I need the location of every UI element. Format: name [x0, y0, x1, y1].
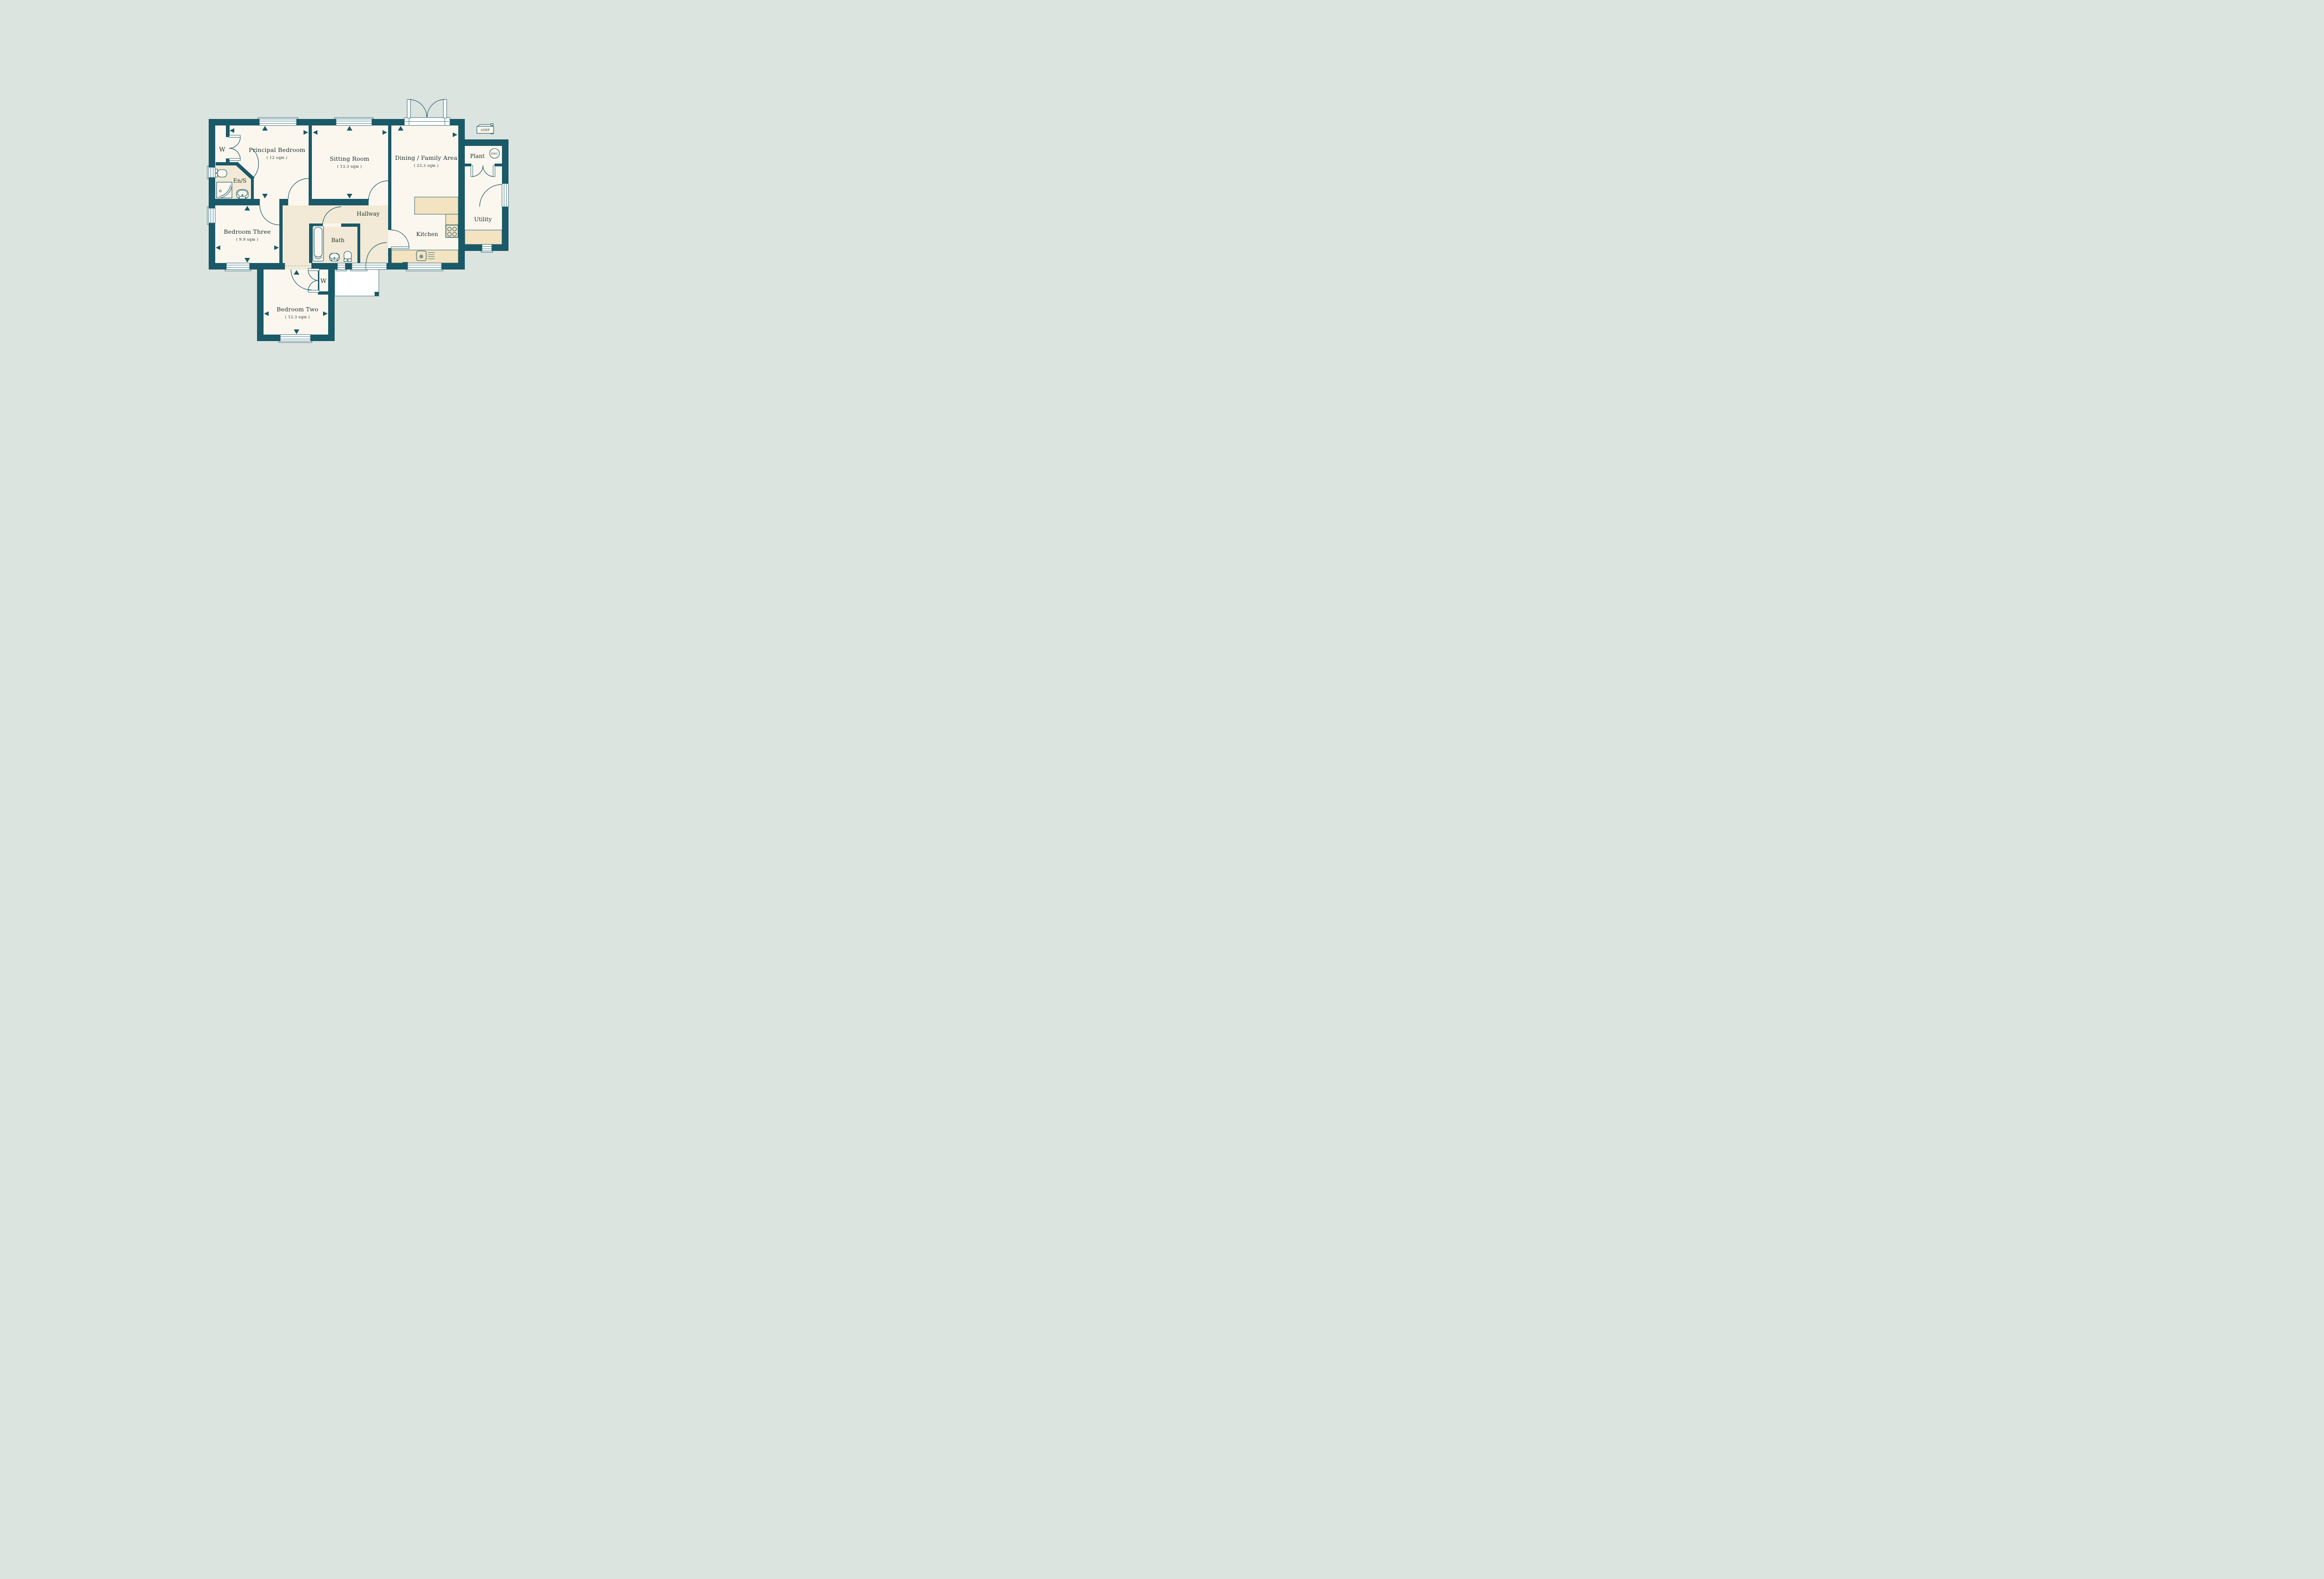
label-principal-bedroom-area: ( 12 sqm )	[267, 156, 288, 160]
label-bedroom-three: Bedroom Three	[224, 228, 271, 235]
entrance-porch	[335, 269, 379, 296]
label-principal-wardrobe: W	[219, 146, 225, 153]
label-sitting-room-area: ( 13.3 sqm )	[337, 164, 362, 169]
porch-post	[375, 292, 379, 296]
ashp-label: ASHP	[480, 129, 489, 132]
toilet-icon	[344, 251, 351, 262]
label-dining-family-area: Dining / Family Area	[395, 154, 458, 161]
label-bath: Bath	[331, 237, 345, 243]
bathtub-icon	[313, 226, 324, 261]
label-bedroom-two: Bedroom Two	[277, 306, 318, 313]
label-plant: Plant	[470, 153, 485, 159]
label-principal-bedroom: Principal Bedroom	[249, 146, 305, 153]
basin-icon	[330, 253, 339, 261]
window-bedroom-two	[279, 335, 312, 342]
french-door-leaf-right	[443, 99, 447, 118]
label-sitting-room: Sitting Room	[330, 155, 369, 162]
label-ensuite: En/S	[233, 178, 247, 184]
ashp-icon: ASHP	[477, 124, 494, 134]
floorplan-drawing: HWC ASHP Principal Bedroom ( 12 sqm ) S	[0, 0, 718, 478]
window-ensuite	[207, 166, 215, 179]
window-bedroom-three-side	[207, 207, 215, 224]
french-door-leaf-left	[407, 99, 410, 118]
window-kitchen	[406, 263, 443, 271]
window-entrance-sidelight	[350, 263, 367, 271]
label-bedroom-three-area: ( 9.9 sqm )	[236, 237, 258, 242]
basin-icon	[237, 190, 248, 199]
label-dining-family-area-size: ( 23.3 sqm )	[414, 164, 438, 168]
label-bedroom-two-area: ( 12.3 sqm )	[285, 315, 310, 319]
window-sitting-room	[335, 118, 373, 125]
utility-counter	[465, 230, 502, 244]
window-principal-bedroom	[258, 118, 298, 125]
hwc-label: HWC	[491, 153, 498, 156]
window-bedroom-three-bottom	[225, 263, 251, 271]
window-utility-bottom	[481, 244, 493, 252]
corridor-opening	[285, 263, 311, 270]
toilet-icon	[215, 169, 227, 177]
floorplan-page: HWC ASHP Principal Bedroom ( 12 sqm ) S	[0, 0, 718, 478]
shower-icon	[217, 182, 232, 198]
label-kitchen: Kitchen	[416, 231, 438, 237]
label-hallway: Hallway	[357, 211, 380, 217]
label-utility: Utility	[474, 216, 492, 223]
label-bedroom-two-wardrobe: W	[320, 278, 327, 285]
window-bath	[336, 263, 347, 271]
